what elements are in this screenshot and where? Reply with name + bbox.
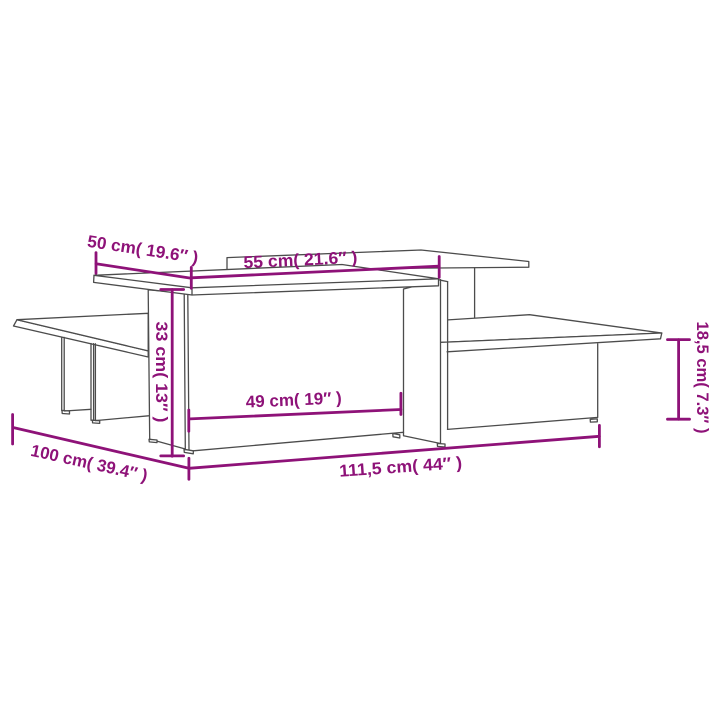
svg-text:18,5 cm( 7.3″ ): 18,5 cm( 7.3″ ) xyxy=(693,322,712,434)
svg-text:33 cm( 13″ ): 33 cm( 13″ ) xyxy=(152,322,171,423)
